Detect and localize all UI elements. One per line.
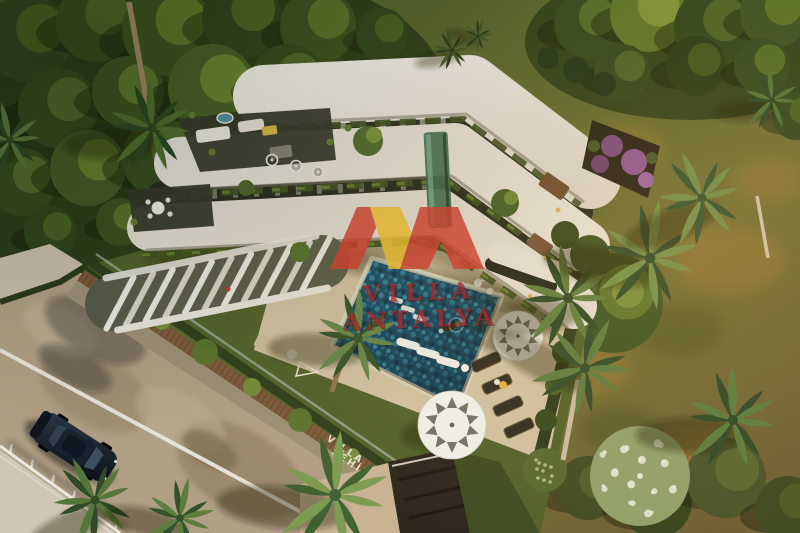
- aerial-render: VILLA ŞEHİR: [0, 0, 800, 533]
- scene-canvas: VILLA ŞEHİR: [0, 0, 800, 533]
